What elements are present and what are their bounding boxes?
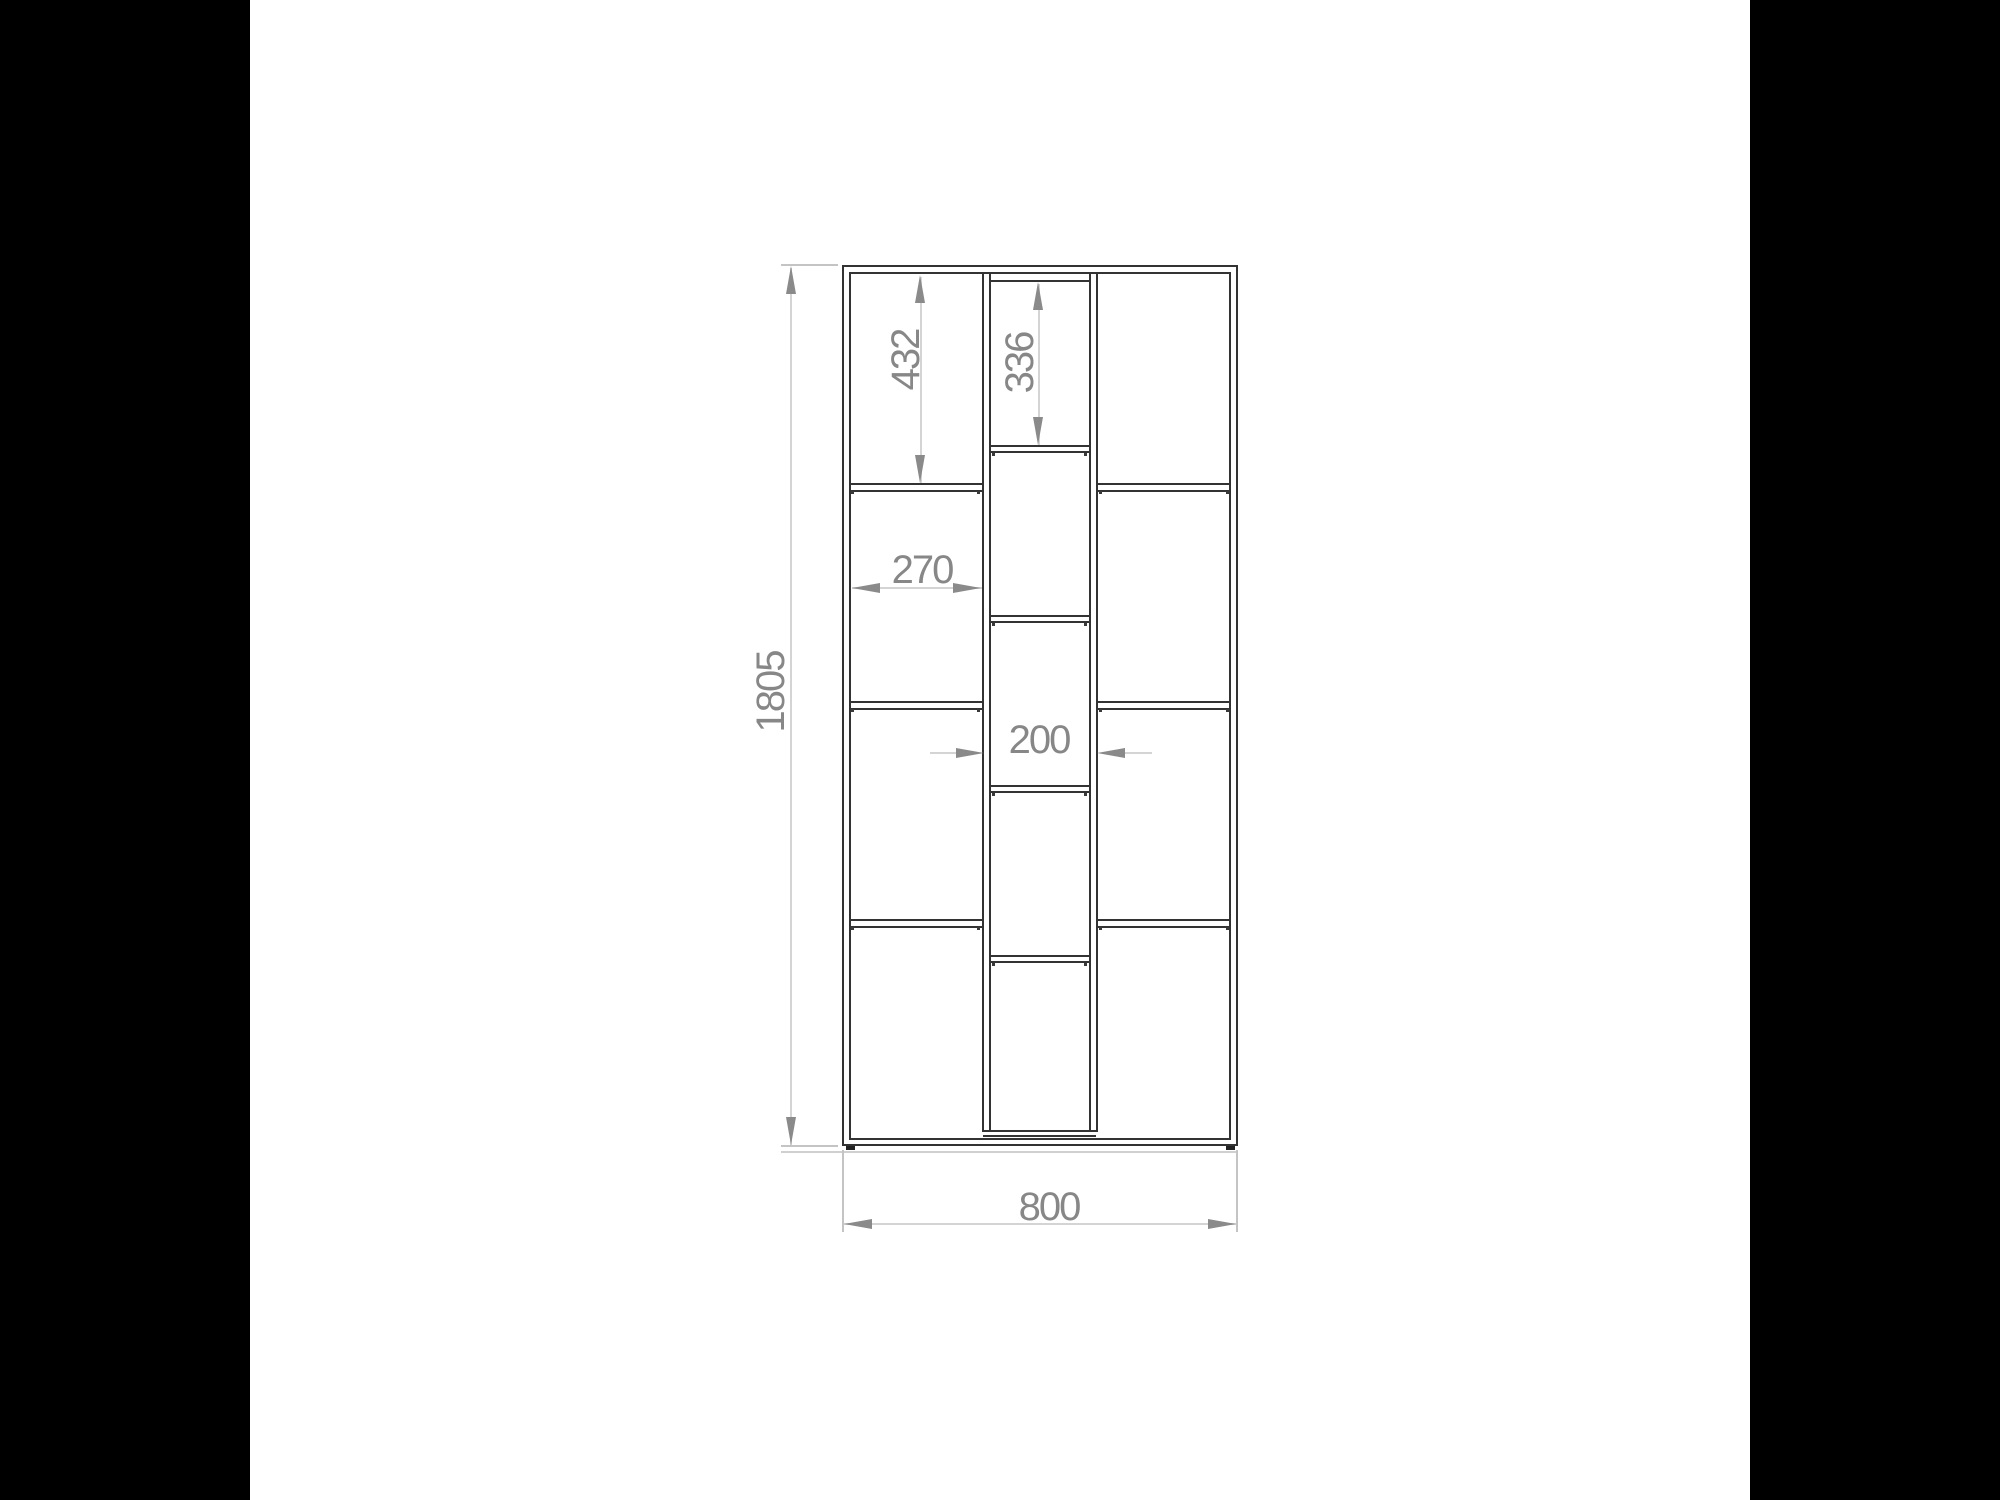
extension-line-bottom — [781, 1145, 838, 1147]
dim-overall-width-label: 800 — [969, 1186, 1129, 1228]
extension-line-right — [1236, 1150, 1238, 1232]
shelf-center-3 — [991, 791, 1089, 793]
shelf-pin — [1084, 623, 1087, 626]
shelf-center-1 — [991, 451, 1089, 453]
cabinet-top-edge-outer — [842, 265, 1238, 267]
shelf-pin — [851, 709, 854, 712]
arrow-down-icon — [915, 455, 925, 483]
shelf-center-3 — [991, 785, 1089, 787]
dim-center-cell-width-label: 200 — [959, 719, 1119, 761]
shelf-pin — [992, 453, 995, 456]
technical-drawing-page: 1805 800 432 336 270 200 — [0, 0, 2000, 1500]
shelf-center-2 — [991, 615, 1089, 617]
floor-shadow-line — [781, 1151, 1238, 1153]
cabinet-bottom-edge-inner — [851, 1138, 1231, 1140]
shelf-pin — [977, 491, 980, 494]
cabinet-side-left-inner — [849, 272, 851, 1140]
shelf-right-1 — [1098, 483, 1229, 485]
dim-outer-cell-height-label: 432 — [885, 275, 927, 445]
shelf-center-4 — [991, 961, 1089, 963]
dimension-tail-left — [930, 752, 957, 754]
arrow-left-icon — [844, 1219, 872, 1229]
shelf-pin — [1226, 709, 1229, 712]
shelf-pin — [851, 491, 854, 494]
shelf-right-2 — [1098, 701, 1229, 703]
shelf-left-1 — [851, 483, 982, 485]
shelf-pin — [851, 927, 854, 930]
arrow-up-icon — [786, 266, 796, 294]
divider-left-panel-line — [982, 274, 984, 1132]
cabinet-side-right-inner — [1229, 272, 1231, 1140]
shelf-left-3 — [851, 919, 982, 921]
shelf-pin — [1099, 709, 1102, 712]
divider-right-panel-line — [1089, 274, 1091, 1132]
foot-glide — [1226, 1146, 1235, 1150]
shelf-left-1 — [851, 490, 982, 492]
foot-glide — [846, 1146, 855, 1150]
shelf-left-2 — [851, 701, 982, 703]
divider-right-panel-line — [1096, 274, 1098, 1132]
arrow-down-icon — [786, 1117, 796, 1145]
shelf-right-3 — [1098, 919, 1229, 921]
dimension-tail-right — [1124, 752, 1152, 754]
shelf-center-4 — [991, 955, 1089, 957]
dim-center-cell-height-label: 336 — [999, 278, 1041, 448]
cabinet-side-right-outer — [1236, 265, 1238, 1146]
shelf-pin — [977, 927, 980, 930]
shelf-pin — [1226, 491, 1229, 494]
shelf-pin — [1099, 491, 1102, 494]
cabinet-bottom-edge-outer — [842, 1144, 1238, 1146]
center-column-bottom-rail — [983, 1130, 1096, 1132]
shelf-pin — [1226, 927, 1229, 930]
shelf-left-2 — [851, 708, 982, 710]
dim-outer-cell-width-label: 270 — [842, 549, 1002, 591]
shelf-pin — [1084, 963, 1087, 966]
shelf-pin — [992, 793, 995, 796]
shelf-pin — [1084, 793, 1087, 796]
letterbox-bar-right — [1750, 0, 2000, 1500]
cabinet-side-left-outer — [842, 265, 844, 1146]
cabinet-top-edge-inner — [851, 272, 1231, 274]
letterbox-bar-left — [0, 0, 250, 1500]
center-column-bottom-rail — [983, 1135, 1096, 1137]
shelf-pin — [1084, 453, 1087, 456]
shelf-right-2 — [1098, 708, 1229, 710]
shelf-pin — [977, 709, 980, 712]
shelf-pin — [1099, 927, 1102, 930]
shelf-pin — [992, 623, 995, 626]
shelf-right-1 — [1098, 490, 1229, 492]
dim-overall-height-label: 1805 — [750, 607, 792, 777]
divider-left-panel-line — [989, 274, 991, 1132]
shelf-pin — [992, 963, 995, 966]
shelf-left-3 — [851, 926, 982, 928]
arrow-right-icon — [1208, 1219, 1236, 1229]
shelf-center-2 — [991, 621, 1089, 623]
shelf-right-3 — [1098, 926, 1229, 928]
